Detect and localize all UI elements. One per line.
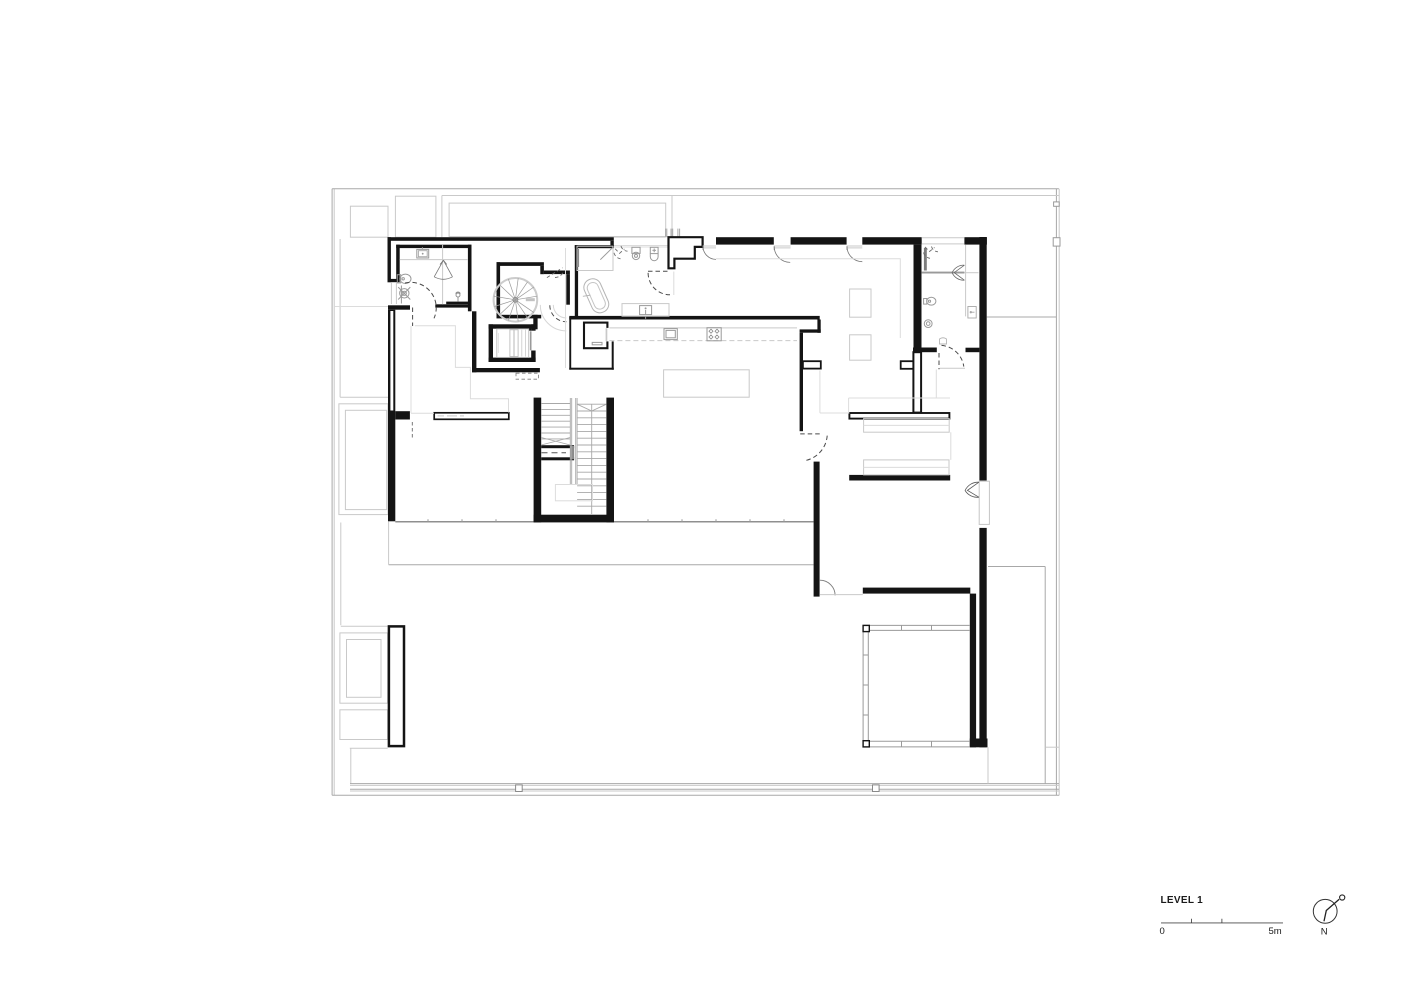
svg-text:LEVEL 1: LEVEL 1 — [1161, 895, 1204, 906]
svg-text:N: N — [1321, 927, 1328, 938]
svg-text:0: 0 — [1160, 926, 1165, 937]
svg-text:5m: 5m — [1269, 926, 1282, 937]
